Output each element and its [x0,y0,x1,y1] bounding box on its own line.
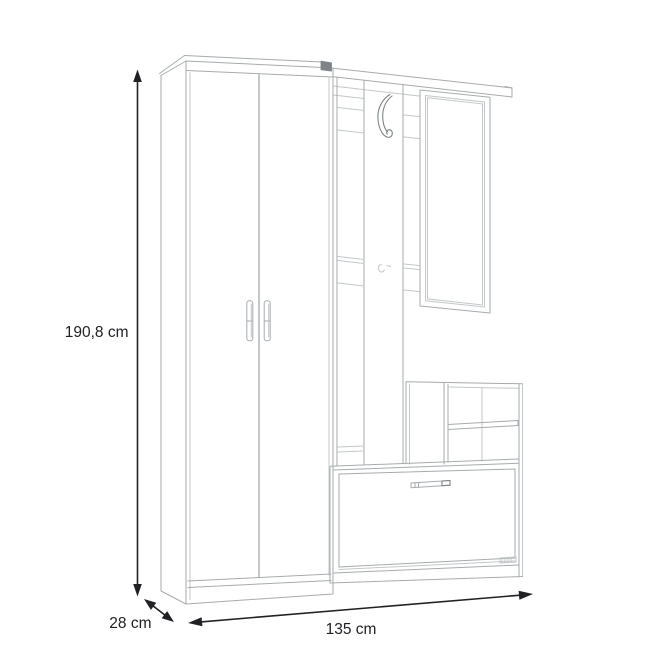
open-shelf-unit [406,382,523,464]
coat-hook-icon [378,95,392,138]
panel-bottom-rail [338,446,364,452]
arrow-right-icon [519,591,533,600]
technical-drawing-canvas: 190,8 cm 28 cm 135 cm [0,0,667,667]
door-handle-right [264,301,270,341]
bench-top-front-edge [334,463,520,470]
middle-shelf [448,421,518,430]
bench-top-back-edge [330,459,519,466]
arrow-up-icon [133,70,142,83]
depth-dimension-line [153,606,166,616]
panel-top-edge [333,95,364,99]
bench-bottom-edge [330,577,523,584]
arrow-left-icon [188,617,202,626]
depth-dimension-label: 28 cm [109,615,151,632]
door-handle-left [247,301,253,341]
wardrobe-top-corner [321,61,332,71]
depth-dimension: 28 cm [109,599,174,632]
small-hook-icon [378,265,390,272]
shelf-unit-divider [444,383,448,465]
shelf-unit-top [406,382,523,384]
panel-middle-rail [338,257,419,292]
furniture-dimension-diagram: 190,8 cm 28 cm 135 cm [0,0,667,667]
arrow-up-left-icon [144,599,156,610]
mirror-outer-frame [420,90,490,313]
mirror [420,90,490,313]
arrow-down-right-icon [162,611,174,622]
height-dimension: 190,8 cm [65,70,142,597]
wardrobe-cabinet [160,56,334,605]
wardrobe-side-panel [161,61,186,604]
top-shelf [322,67,512,99]
coat-hook-panel [337,77,419,465]
arrow-down-icon [133,584,142,597]
shoe-bench [330,459,523,583]
top-shelf-underside [333,86,419,96]
width-dimension-label: 135 cm [326,621,377,638]
shelf-unit-inner-top [448,387,519,388]
height-dimension-label: 190,8 cm [65,324,129,341]
top-shelf-top-edge [322,67,512,88]
